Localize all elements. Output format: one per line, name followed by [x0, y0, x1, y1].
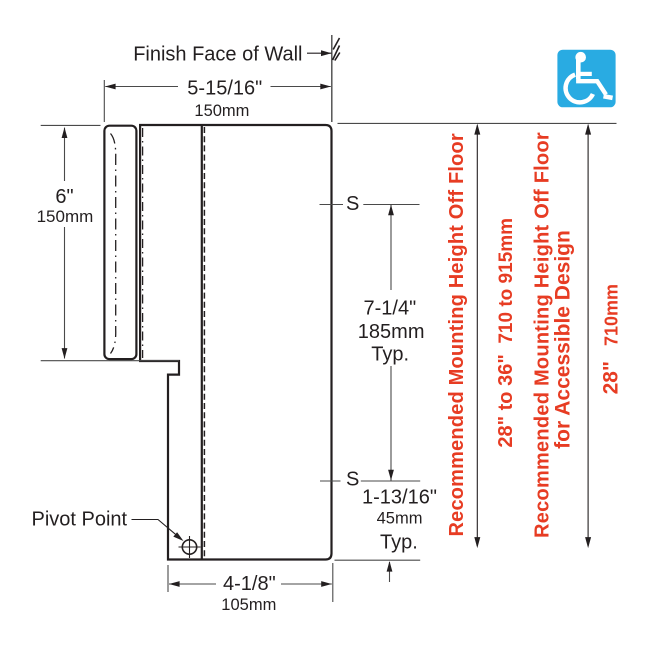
svg-text:5-15/16": 5-15/16": [187, 78, 262, 100]
svg-text:Typ.: Typ.: [380, 532, 418, 554]
svg-text:S: S: [346, 469, 359, 491]
svg-text:185mm: 185mm: [358, 321, 425, 343]
svg-text:105mm: 105mm: [221, 596, 276, 614]
svg-text:45mm: 45mm: [377, 510, 423, 528]
svg-text:Typ.: Typ.: [371, 343, 409, 365]
svg-text:150mm: 150mm: [37, 207, 94, 226]
svg-text:Recommended Mounting Height Of: Recommended Mounting Height Off Floor: [531, 132, 553, 538]
svg-text:S: S: [346, 193, 359, 215]
svg-text:Recommended Mounting Height Of: Recommended Mounting Height Off Floor: [446, 133, 468, 536]
svg-text:4-1/8": 4-1/8": [223, 573, 276, 595]
svg-text:Finish Face of Wall: Finish Face of Wall: [133, 43, 302, 65]
svg-text:150mm: 150mm: [194, 102, 249, 120]
svg-text:for Accessible Design: for Accessible Design: [552, 230, 575, 449]
svg-text:28" to 36" 710 to 915mm: 28" to 36" 710 to 915mm: [495, 218, 517, 448]
svg-text:28" 710mm: 28" 710mm: [599, 284, 622, 394]
svg-text:6": 6": [55, 186, 73, 208]
svg-text:1-13/16": 1-13/16": [362, 487, 437, 509]
svg-text:7-1/4": 7-1/4": [364, 298, 417, 320]
svg-text:Pivot Point: Pivot Point: [32, 509, 128, 531]
